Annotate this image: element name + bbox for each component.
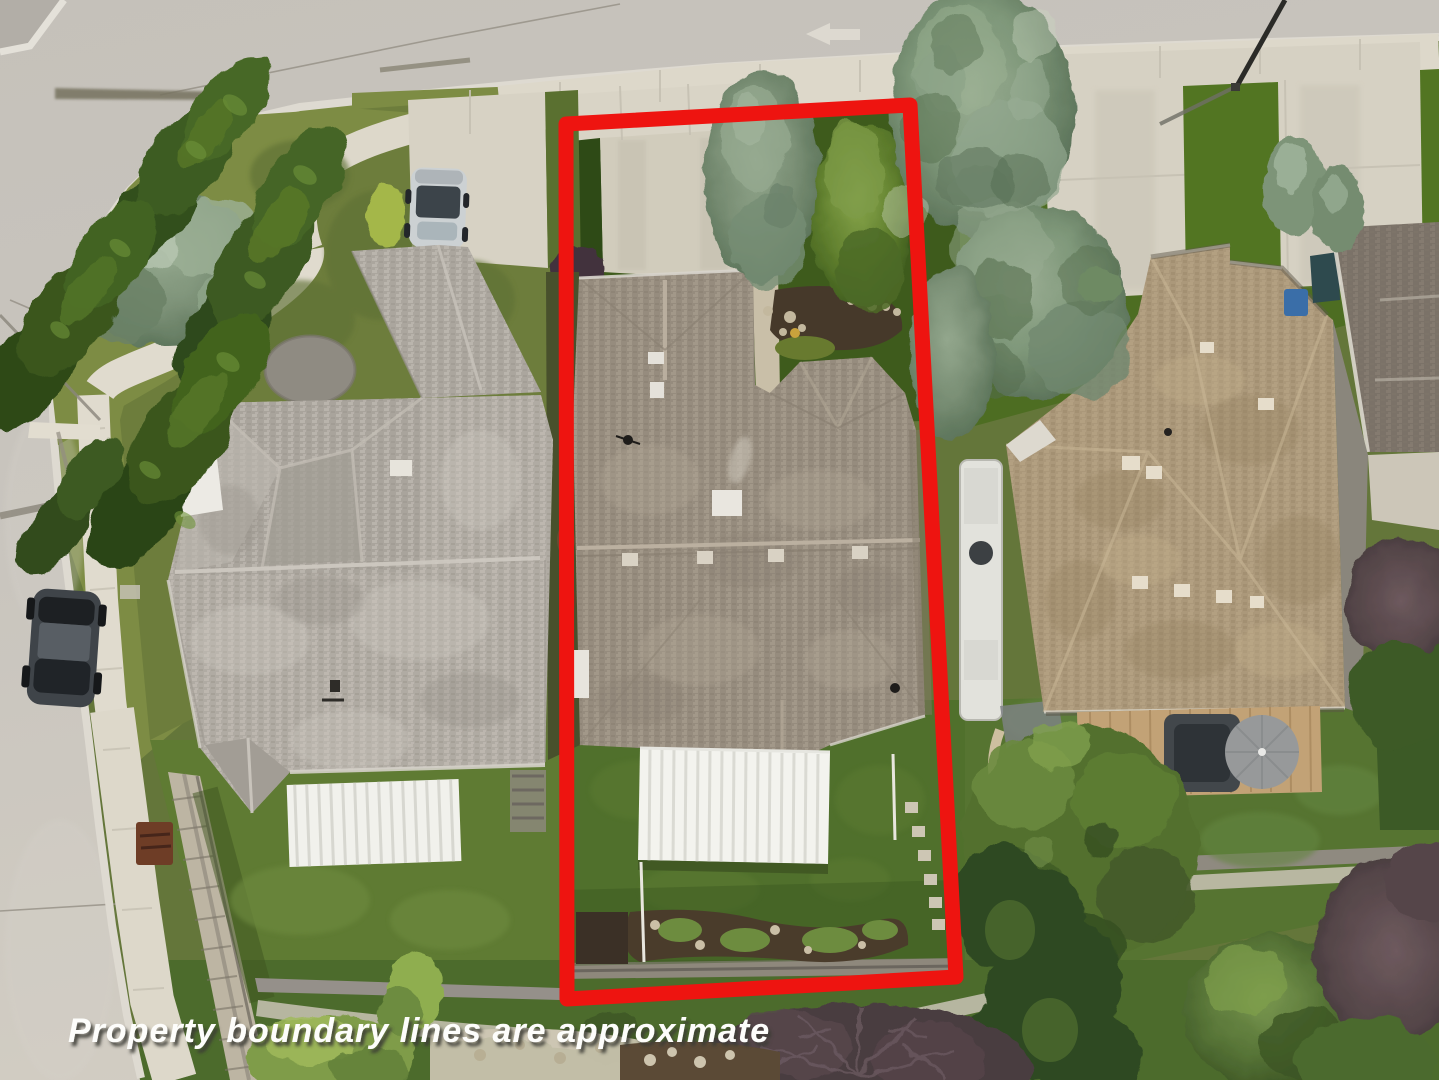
svg-text:Property boundary lines are ap: Property boundary lines are approximate: [68, 1012, 770, 1050]
